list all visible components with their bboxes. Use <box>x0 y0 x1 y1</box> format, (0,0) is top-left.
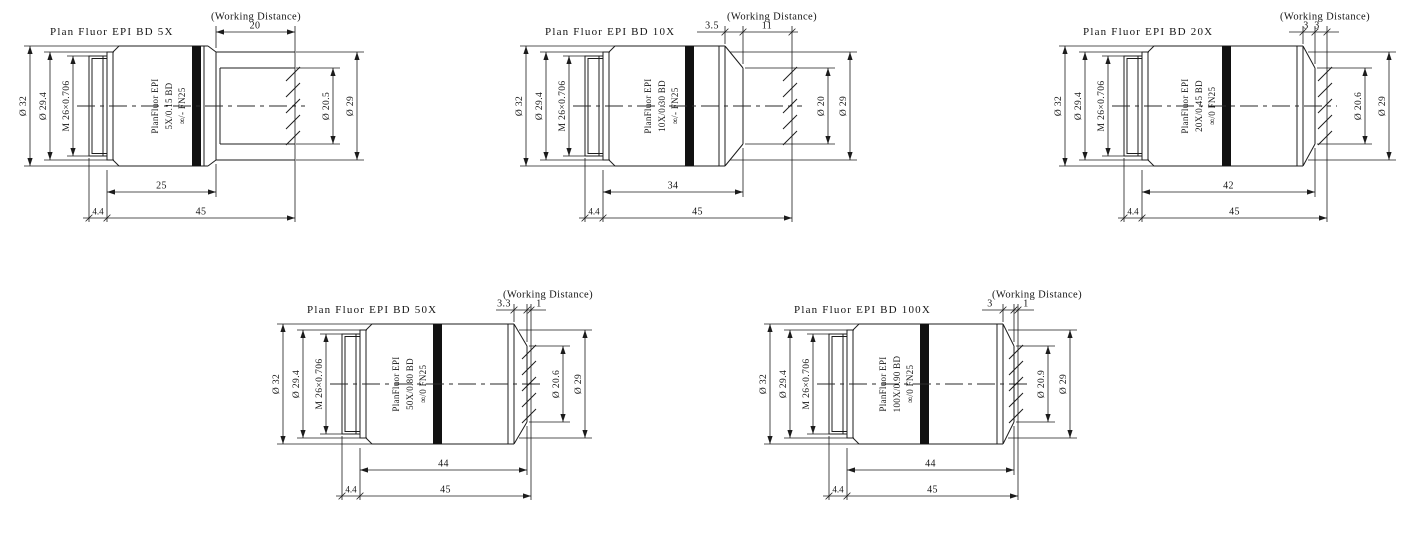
thread-spec-label: M 26×0.706 <box>802 358 812 409</box>
dimension-arrow <box>523 46 528 54</box>
working-distance-label: (Working Distance) <box>1280 12 1370 23</box>
snout-dia-label: Ø 29 <box>1378 96 1388 116</box>
barrel-marking-line: PlanFluor EPI <box>1180 78 1190 133</box>
dimension-arrow <box>323 334 328 342</box>
outer-dia-label: Ø 32 <box>1054 96 1064 116</box>
dimension-arrow <box>330 136 335 144</box>
working-distance-label: (Working Distance) <box>727 12 817 23</box>
barrel-marking-line: PlanFluor EPI <box>391 356 401 411</box>
nose-chamfer <box>1303 46 1315 68</box>
body-outline <box>573 46 802 166</box>
barrel-marking-line: PlanFluor EPI <box>643 78 653 133</box>
dimension-arrow <box>810 426 815 434</box>
shoulder-chamfer <box>1148 160 1154 166</box>
dimension-arrow <box>287 215 295 220</box>
dimension-arrow <box>825 136 830 144</box>
nose-chamfer <box>725 144 743 166</box>
body-length-dim-label: 25 <box>156 181 167 192</box>
dimension-arrow <box>300 430 305 438</box>
barrel-marking-line: PlanFluor EPI <box>878 356 888 411</box>
barrel-marking-line: 50X/0.80 BD <box>405 358 415 410</box>
dimension-arrow <box>1142 189 1150 194</box>
dimension-arrow <box>1105 148 1110 156</box>
specimen-hatch-mark <box>1009 361 1023 375</box>
shoulder-chamfer <box>366 438 372 444</box>
dimension-arrow <box>1319 215 1327 220</box>
working-distance-label: (Working Distance) <box>503 290 593 301</box>
dimension-arrow <box>1386 52 1391 60</box>
drawing-sheet: 20Ø 32Ø 29.4M 26×0.706Ø 20.5Ø 29254.445P… <box>0 0 1422 560</box>
dimension-arrow <box>1105 56 1110 64</box>
specimen-hatch-mark <box>1318 67 1332 81</box>
specimen-hatch-mark <box>522 393 536 407</box>
dimension-arrow <box>787 430 792 438</box>
mount-flange-dia-label: Ø 29.4 <box>39 92 49 120</box>
specimen-hatch-mark <box>286 99 300 113</box>
mount-flange-dia-label: Ø 29.4 <box>1074 92 1084 120</box>
snout-chamfer <box>208 46 216 52</box>
specimen-hatch-mark <box>1009 393 1023 407</box>
dimension-arrow <box>300 330 305 338</box>
body-length-dim-label: 34 <box>668 181 679 192</box>
thread-length-dim-label: 4.4 <box>832 485 844 495</box>
snout-dia-label: Ø 29 <box>574 374 584 394</box>
dimension-arrow <box>354 152 359 160</box>
dimension-arrow <box>523 158 528 166</box>
dimension-arrow <box>107 189 115 194</box>
bore-dia-label: Ø 20 <box>817 96 827 116</box>
specimen-hatch-mark <box>783 131 797 145</box>
specimen-hatch-mark <box>286 67 300 81</box>
specimen-hatch-mark <box>522 345 536 359</box>
dimension-arrow <box>1362 136 1367 144</box>
dimension-arrow <box>560 346 565 354</box>
outer-dia-label: Ø 32 <box>272 374 282 394</box>
barrel-marking-line: PlanFluor EPI <box>150 78 160 133</box>
text-labels: 3.511Ø 32Ø 29.4M 26×0.706Ø 20Ø 29344.445… <box>515 12 849 218</box>
dimension-arrow <box>560 414 565 422</box>
dimension-arrow <box>847 152 852 160</box>
shoulder-chamfer <box>609 46 615 52</box>
specimen-hatch-mark <box>286 131 300 145</box>
shoulder-chamfer <box>1148 46 1154 52</box>
nose-chamfer <box>514 422 527 444</box>
dimension-arrow <box>1082 152 1087 160</box>
dimension-arrow <box>1307 189 1315 194</box>
mount-flange-dia-label: Ø 29.4 <box>535 92 545 120</box>
dimension-arrow <box>603 189 611 194</box>
shoulder-chamfer <box>609 160 615 166</box>
nose-chamfer <box>514 324 527 346</box>
parfocal-dim-label: 45 <box>196 207 207 218</box>
shoulder-chamfer <box>853 324 859 330</box>
barrel-marking-line: ∞/- FN25 <box>670 87 680 124</box>
text-labels: 3.31Ø 32Ø 29.4M 26×0.706Ø 20.6Ø 29444.44… <box>272 290 593 496</box>
dimension-arrow <box>280 324 285 332</box>
shoulder-chamfer <box>366 324 372 330</box>
objective-drawing-10x: 3.511Ø 32Ø 29.4M 26×0.706Ø 20Ø 29344.445… <box>496 0 868 236</box>
specimen-hatch-mark <box>783 99 797 113</box>
dimension-arrow <box>47 152 52 160</box>
snout-dia-label: Ø 29 <box>1059 374 1069 394</box>
dimension-arrow <box>847 52 852 60</box>
dimension-arrow <box>767 324 772 332</box>
thread-spec-label: M 26×0.706 <box>1097 80 1107 131</box>
shoulder-chamfer <box>113 46 119 52</box>
dimension-arrow <box>543 52 548 60</box>
specimen-hatch-mark <box>286 83 300 97</box>
dimension-arrow <box>47 52 52 60</box>
dimension-arrow <box>566 56 571 64</box>
dimension-arrow <box>582 430 587 438</box>
parfocal-dim-label: 45 <box>440 485 451 496</box>
outer-dia-label: Ø 32 <box>19 96 29 116</box>
body-length-dim-label: 42 <box>1223 181 1234 192</box>
drawing-title: Plan Fluor EPI BD 100X <box>794 304 931 316</box>
barrel-marking-line: ∞/0 FN25 <box>905 365 915 404</box>
mount-flange-dia-label: Ø 29.4 <box>292 370 302 398</box>
dimension-arrow <box>27 46 32 54</box>
barrel-marking-line: ∞/0 FN25 <box>418 365 428 404</box>
dimension-arrow <box>784 215 792 220</box>
thread-spec-label: M 26×0.706 <box>62 80 72 131</box>
mount-flange-dia-label: Ø 29.4 <box>779 370 789 398</box>
body-outline <box>77 46 305 166</box>
barrel-marking-line: ∞/- FN25 <box>177 87 187 124</box>
shoulder-chamfer <box>853 438 859 444</box>
nose-chamfer <box>1303 144 1315 166</box>
specimen-hatch-mark <box>783 115 797 129</box>
dimension-arrow <box>1362 68 1367 76</box>
dimension-arrow <box>582 330 587 338</box>
body-length-dim-label: 44 <box>438 459 449 470</box>
body-outline <box>330 324 541 444</box>
text-labels: 33Ø 32Ø 29.4M 26×0.706Ø 20.6Ø 29424.445P… <box>1054 12 1388 218</box>
drawing-title: Plan Fluor EPI BD 10X <box>545 26 675 38</box>
parfocal-dim-label: 45 <box>692 207 703 218</box>
parfocal-dim-label: 45 <box>1229 207 1240 218</box>
dimension-arrow <box>216 29 224 34</box>
barrel-marking-line: 100X/0.90 BD <box>892 356 902 413</box>
dimension-arrow <box>1062 158 1067 166</box>
dimension-arrow <box>70 148 75 156</box>
drawing-title: Plan Fluor EPI BD 5X <box>50 26 174 38</box>
dimension-arrow <box>787 330 792 338</box>
thread-length-dim-label: 4.4 <box>92 207 104 217</box>
dimension-arrow <box>543 152 548 160</box>
barrel-marking-line: 20X/0.45 BD <box>1194 80 1204 132</box>
dimension-arrow <box>354 52 359 60</box>
parfocal-dim-label: 45 <box>927 485 938 496</box>
specimen-hatch-mark <box>1009 345 1023 359</box>
outer-dia-label: Ø 32 <box>759 374 769 394</box>
objective-drawing-100x: 31Ø 32Ø 29.4M 26×0.706Ø 20.9Ø 29444.445P… <box>764 278 1136 514</box>
bore-dia-label: Ø 20.5 <box>322 92 332 120</box>
dimension-arrow <box>847 467 855 472</box>
working-distance-dim-label: 3.5 <box>705 21 719 32</box>
dimension-arrow <box>208 189 216 194</box>
specimen-hatch-mark <box>1318 83 1332 97</box>
specimen-hatch-mark <box>1009 409 1023 423</box>
thread-spec-label: M 26×0.706 <box>315 358 325 409</box>
thread-length-dim-label: 4.4 <box>588 207 600 217</box>
dimension-arrow <box>1045 346 1050 354</box>
specimen-hatch-mark <box>286 115 300 129</box>
body-length-dim-label: 44 <box>925 459 936 470</box>
snout-dia-label: Ø 29 <box>346 96 356 116</box>
dimension-arrow <box>1082 52 1087 60</box>
dimension-arrow <box>1062 46 1067 54</box>
text-labels: 20Ø 32Ø 29.4M 26×0.706Ø 20.5Ø 29254.445P… <box>19 12 356 218</box>
objective-drawing-20x: 33Ø 32Ø 29.4M 26×0.706Ø 20.6Ø 29424.445P… <box>1036 0 1408 236</box>
dimension-arrow <box>735 189 743 194</box>
dimension-arrow <box>360 467 368 472</box>
outer-dia-label: Ø 32 <box>515 96 525 116</box>
bore-dia-label: Ø 20.6 <box>552 370 562 398</box>
dimension-arrow <box>330 68 335 76</box>
working-distance-label: (Working Distance) <box>211 12 301 23</box>
dimension-arrow <box>70 56 75 64</box>
objective-drawing-50x: 3.31Ø 32Ø 29.4M 26×0.706Ø 20.6Ø 29444.44… <box>274 278 646 514</box>
dimension-arrow <box>519 467 527 472</box>
nose-chamfer <box>725 46 743 68</box>
body-outline <box>817 324 1028 444</box>
body-outline <box>1112 46 1337 166</box>
barrel-marking-line: ∞/0 FN25 <box>1207 87 1217 126</box>
shoulder-chamfer <box>113 160 119 166</box>
dimension-arrow <box>323 426 328 434</box>
drawing-title: Plan Fluor EPI BD 50X <box>307 304 437 316</box>
drawing-title: Plan Fluor EPI BD 20X <box>1083 26 1213 38</box>
dimension-arrow <box>1067 330 1072 338</box>
dimension-arrow <box>810 334 815 342</box>
dimension-arrow <box>280 436 285 444</box>
specimen-hatch-mark <box>783 83 797 97</box>
specimen-hatch-mark <box>522 361 536 375</box>
thread-length-dim-label: 4.4 <box>345 485 357 495</box>
specimen-hatch-mark <box>783 67 797 81</box>
specimen-hatch-mark <box>1318 115 1332 129</box>
nose-chamfer <box>1003 422 1014 444</box>
bore-dia-label: Ø 20.9 <box>1037 370 1047 398</box>
objective-drawing-5x: 20Ø 32Ø 29.4M 26×0.706Ø 20.5Ø 29254.445P… <box>8 0 380 236</box>
dimension-arrow <box>767 436 772 444</box>
dimension-arrow <box>27 158 32 166</box>
barrel-marking-line: 5X/0.15 BD <box>164 82 174 129</box>
nose-chamfer <box>1003 324 1014 346</box>
snout-chamfer <box>208 160 216 166</box>
thread-spec-label: M 26×0.706 <box>558 80 568 131</box>
specimen-hatch-mark <box>522 409 536 423</box>
thread-length-dim-label: 4.4 <box>1127 207 1139 217</box>
dimension-arrow <box>1067 430 1072 438</box>
dimension-arrow <box>1386 152 1391 160</box>
dimension-arrow <box>287 29 295 34</box>
dimension-arrow <box>566 148 571 156</box>
dimension-arrow <box>1045 414 1050 422</box>
working-distance-label: (Working Distance) <box>992 290 1082 301</box>
specimen-hatch-mark <box>1318 131 1332 145</box>
dimension-arrow <box>1010 493 1018 498</box>
dimension-arrow <box>523 493 531 498</box>
dimension-arrow <box>825 68 830 76</box>
snout-dia-label: Ø 29 <box>839 96 849 116</box>
barrel-marking-line: 10X/0.30 BD <box>657 80 667 132</box>
bore-dia-label: Ø 20.6 <box>1354 92 1364 120</box>
dimension-arrow <box>1006 467 1014 472</box>
